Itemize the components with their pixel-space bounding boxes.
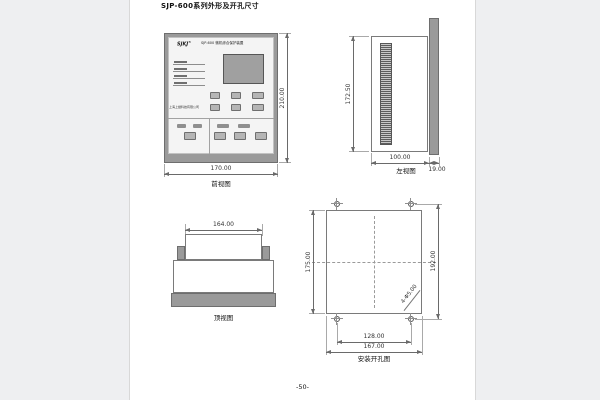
extension-line (411, 323, 412, 345)
keypad-button (252, 92, 264, 99)
dim-line-side-height (353, 36, 354, 152)
indicator-row (173, 58, 205, 65)
dim-line-panel-thickness (429, 163, 439, 164)
top-view-caption: 顶视图 (185, 315, 262, 322)
top-view-panel-bar (171, 293, 276, 307)
dim-label-side-height: 172.50 (346, 79, 352, 109)
centerline-horizontal (312, 262, 436, 263)
panel-chip (217, 124, 229, 128)
dim-line-cutout-width (326, 352, 422, 353)
dim-line-front-height (287, 33, 288, 163)
registered-mark: ® (188, 40, 191, 44)
side-view-panel-bar (429, 18, 439, 155)
keypad-button (210, 104, 220, 111)
mounting-hole-top-left (334, 201, 340, 207)
dim-label-front-height: 210.00 (280, 83, 286, 113)
page-number: -50- (130, 384, 475, 391)
dim-label-cutout-width: 167.00 (326, 344, 422, 350)
panel-divider-v (209, 118, 210, 154)
dim-label-top-width: 164.00 (185, 222, 262, 228)
panel-button (184, 132, 196, 140)
company-text: 上海上继科技有限公司 (169, 106, 199, 109)
brand-logo-text: SJKJ (177, 42, 188, 48)
dim-line-hole-v-spacing (438, 204, 439, 319)
dim-line-cutout-height (313, 210, 314, 314)
keypad-button (231, 92, 241, 99)
dim-label-hole-h-spacing: 128.00 (337, 334, 411, 340)
keypad-button (231, 104, 241, 111)
top-view-clip-left (177, 246, 185, 260)
cutout-view-caption: 安装开孔图 (326, 356, 422, 363)
extension-line (415, 319, 442, 320)
dim-label-cutout-height: 175.00 (306, 247, 312, 277)
keypad-button (210, 92, 220, 99)
page-title: SJP-600系列外形及开孔尺寸 (161, 1, 259, 11)
lcd-screen (223, 54, 264, 84)
panel-button (234, 132, 246, 140)
screenshot-stage: SJP-600系列外形及开孔尺寸 SJKJ® SJP-600 微机综合保护装置 … (0, 0, 600, 400)
indicator-row (173, 72, 205, 79)
extension-line (262, 224, 263, 236)
mounting-hole-top-right (408, 201, 414, 207)
dim-line-top-width (185, 230, 262, 231)
side-view-terminal-strip (380, 43, 392, 145)
front-model-text: SJP-600 微机综合保护装置 (201, 42, 243, 46)
top-view-front-body (173, 260, 274, 293)
dim-line-front-width (164, 174, 278, 175)
panel-button (214, 132, 226, 140)
top-view-rear-body (185, 234, 262, 260)
dim-label-hole-v-spacing: 192.00 (431, 246, 437, 276)
front-view-caption: 前视图 (164, 181, 278, 188)
panel-chip (238, 124, 250, 128)
panel-divider-h (168, 118, 274, 119)
indicator-row (173, 79, 205, 86)
mounting-hole-bottom-right (408, 316, 414, 322)
side-view-caption: 左视图 (377, 168, 435, 175)
extension-line (422, 316, 423, 355)
document-page: SJP-600系列外形及开孔尺寸 SJKJ® SJP-600 微机综合保护装置 … (129, 0, 476, 400)
mounting-hole-bottom-left (334, 316, 340, 322)
dim-line-side-depth (371, 163, 429, 164)
extension-line (439, 157, 440, 166)
brand-logo: SJKJ® (177, 41, 191, 48)
dim-label-front-width: 170.00 (164, 166, 278, 172)
keypad-button (252, 104, 264, 111)
dim-label-side-depth: 100.00 (371, 155, 429, 161)
panel-chip (177, 124, 186, 128)
panel-button (255, 132, 267, 140)
top-view-clip-right (262, 246, 270, 260)
panel-chip (193, 124, 202, 128)
indicator-row (173, 65, 205, 72)
